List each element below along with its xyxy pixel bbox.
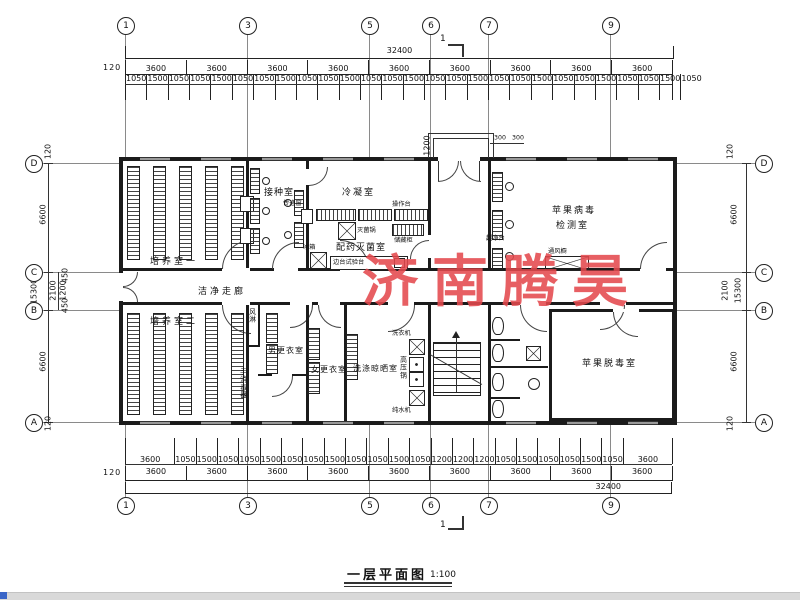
page-edge-corner [0,592,7,599]
room-label-corridor: 洁净走廊 [198,284,246,297]
wall-interior [488,305,491,421]
door-arc [272,376,293,397]
toilet-fixture [492,344,504,362]
water-purifier [409,390,425,406]
pass-window [301,209,313,224]
toilet-fixture [492,317,504,335]
section-mark [448,528,464,530]
dim-label: 1050 [409,438,430,464]
dim-label: 1050 [552,74,573,100]
dim-label: 1500 [324,438,345,464]
room-label-women-changing: 女更衣室 [311,364,347,375]
stair-up-arrow [452,331,460,338]
dim-label: 1050 [601,438,622,464]
toilet-fixture [492,373,504,391]
window [567,157,597,161]
window [628,157,658,161]
storage-cabinet [392,224,424,236]
culture-shelf [127,313,140,415]
culture-shelf [179,166,192,260]
section-mark-label: 1 [440,520,447,530]
dim-tick [742,163,751,164]
dim-label: 3600 [368,60,429,74]
clean-bench [250,228,260,254]
dim-label: 120 [44,134,53,170]
culture-shelf [231,313,244,415]
sterilizer-label: 灭菌锅 [357,226,376,235]
stool [505,220,514,229]
dim-label: 300 [512,134,524,141]
dim-label: 1050 [296,74,317,100]
dim-label: 3600 [247,466,308,480]
dim-label: 1050 [424,74,445,100]
dim-label: 1050 [232,74,253,100]
door-arc [123,272,138,287]
entrance-canopy-inner [433,138,489,158]
wall-interior [428,161,431,235]
culture-shelf [153,313,166,415]
water-purifier-label: 纯水机 [392,406,411,415]
dim-label: 1500 [595,74,616,100]
axis-line [42,422,119,423]
washer-label: 洗衣机 [392,329,411,338]
room-label-virus2: 检测室 [556,218,589,231]
dim-label: 3600 [611,466,672,480]
dim-label: 1050 [509,74,530,100]
window [567,421,597,425]
side-bench-label: 边台试验台 [333,258,364,267]
dim-label: 3600 [550,60,611,74]
grid-row-bubble: C [755,264,773,282]
door-leaf [479,161,480,181]
dim-label: 3600 [125,438,174,464]
floor-plan-sheet: 1 3 5 6 7 9 1 3 5 6 7 9 D C B A D C B A … [0,0,800,600]
dim-label: 1050 [238,438,259,464]
door-arc [309,167,328,186]
sterilizer [338,222,356,240]
wall-interior [306,185,309,268]
dim-label: 1050 [302,438,323,464]
wall-air-shower [258,305,260,347]
wall-corridor-top [666,268,677,271]
dim-label: 1050 [574,74,595,100]
dim-label: 6600 [730,197,739,233]
dim-edge-bottom: 120 [103,468,121,477]
grid-column-bubble: 1 [117,497,135,515]
dim-line [490,143,524,144]
stool [284,231,292,239]
dim-label: 1050 [360,74,381,100]
axis-line [42,163,119,164]
dim-label: 1500 [210,74,231,100]
dim-label: 1050 [559,438,580,464]
window [506,421,536,425]
wall-corridor-top [119,268,222,271]
dim-label: 3600 [611,60,672,74]
dim-label: 3600 [125,466,186,480]
worktop-bench [358,209,392,221]
sink-fixture [526,346,541,361]
dim-label: 1050 [253,74,274,100]
dim-label: 1500 [516,438,537,464]
dim-label: 1200 [473,438,494,464]
dim-label: 3600 [490,466,551,480]
dim-label: 3600 [247,60,308,74]
floor-drain [528,378,540,390]
wall-corridor-top [250,268,274,271]
grid-column-bubble: 3 [239,17,257,35]
wall-corridor-bottom [250,302,290,305]
locker [308,328,320,360]
door-arc [290,305,313,328]
dim-chain-right [746,163,747,422]
window [140,421,170,425]
window [140,157,170,161]
dim-overall-bottom: 32400 [125,482,672,494]
locker [266,313,278,343]
window [506,157,536,161]
dim-label: 1050 [345,438,366,464]
grid-column-bubble: 5 [361,497,379,515]
window [323,421,353,425]
dim-label: 1500 [339,74,360,100]
dim-label: 1050 [174,438,195,464]
dim-label: 3600 [307,466,368,480]
dim-label: 1500 [260,438,281,464]
wall-toilet [490,366,548,368]
grid-column-bubble: 9 [602,17,620,35]
door-arc [318,305,341,328]
grid-column-bubble: 1 [117,17,135,35]
window [201,421,231,425]
dim-label: 3600 [186,466,247,480]
dim-label: 15300 [734,273,743,309]
dim-label: 1050 [488,74,509,100]
wall-interior [258,374,272,376]
grid-row-bubble: C [25,264,43,282]
dim-tick [44,310,53,311]
dim-label: 3600 [368,466,429,480]
wall-air-shower [246,345,260,347]
culture-shelf [205,313,218,415]
wall-toilet-stall [490,397,520,399]
dim-label: 6600 [39,197,48,233]
air-shower-label: 风淋 [248,308,257,323]
stool [262,177,270,185]
dim-label: 1050 [189,74,210,100]
dim-bays-bottom: 360036003600360036003600360036003600 [125,466,673,481]
clean-bench-label: 超净台 [486,234,505,243]
dim-label: 1050 [125,74,146,100]
grid-column-bubble: 6 [422,497,440,515]
dim-tick [742,272,751,273]
window [262,157,292,161]
door-arc [123,287,138,302]
grid-row-bubble: D [25,155,43,173]
dim-tick [742,422,751,423]
autoclave [409,372,424,387]
window [384,157,414,161]
stool [262,207,270,215]
room-label-culture1: 培养室一 [150,254,198,267]
wall-corridor-bottom [119,302,222,305]
dim-label: 1050 [537,438,558,464]
grid-row-bubble: D [755,155,773,173]
grid-column-bubble: 6 [422,17,440,35]
dim-label: 1050 [445,74,466,100]
worktop-bench [316,209,356,221]
dim-label: 1500 [531,74,552,100]
dim-detail-top: 1050150010501050150010501050150010501050… [125,74,673,100]
grid-column-bubble: 5 [361,17,379,35]
dim-label: 1200 [431,438,452,464]
dim-label: 1500 [403,74,424,100]
title-underline-thin [344,586,452,587]
stool [262,237,270,245]
dim-label: 1050 [217,438,238,464]
dim-label: 120 [726,406,735,442]
worktop-label: 操作台 [392,200,411,209]
stool [505,182,514,191]
wall-interior [428,305,431,421]
dim-label: 1050 [366,438,387,464]
grid-column-bubble: 3 [239,497,257,515]
dim-label: 1050 [168,74,189,100]
dim-label: 3600 [429,60,490,74]
dim-label: 1500 [659,74,680,100]
dim-label: 1050 [680,74,701,100]
dim-label: 1500 [196,438,217,464]
grid-row-bubble: B [25,302,43,320]
culture-shelf [231,166,244,260]
dim-label: 1050 [495,438,516,464]
window [201,157,231,161]
room-label-culture2: 培养室二 [150,314,198,327]
culture-shelf [179,313,192,415]
grid-row-bubble: B [755,302,773,320]
culture-shelf [153,166,166,260]
room-label-inoculation: 接种室 [264,185,294,198]
clean-bench [250,168,260,194]
section-mark-label: 1 [440,34,447,44]
dim-label: 3600 [125,60,186,74]
fridge-label: 冰箱 [303,243,315,252]
room-label-washing: 洗涤晾晒室 [353,363,398,374]
room-label-detox: 苹果脱毒室 [582,356,637,369]
clean-bench [250,198,260,224]
dim-tick [742,310,751,311]
entrance-door-arc [460,161,481,182]
dim-label: 1500 [275,74,296,100]
grid-row-bubble: A [25,414,43,432]
dim-label: 120 [44,406,53,442]
window [262,421,292,425]
dim-label: 6600 [730,344,739,380]
pass-window-label: 传递窗 [283,199,302,208]
toilet-fixture [492,400,504,418]
dim-label: 300 [494,134,506,141]
title-underline-thick [344,582,452,584]
washer [409,339,425,355]
room-label-men-changing: 男更衣室 [268,345,304,356]
culture-shelf [127,166,140,260]
dim-label: 1500 [580,438,601,464]
entrance-door-arc [438,161,459,182]
dim-label: 6600 [39,344,48,380]
dim-label: 3600 [490,60,551,74]
dim-label: 3600 [623,438,672,464]
grid-row-bubble: A [755,414,773,432]
drawing-title: 一层平面图 [347,564,427,583]
window [323,157,353,161]
grid-column-bubble: 7 [480,497,498,515]
dim-label: 120 [726,134,735,170]
watermark-text: 济南腾昊 [362,252,642,314]
wall-toilet-stall [490,339,520,341]
dim-label: 2100 [49,273,58,309]
dim-label: 1050 [616,74,637,100]
dim-edge-top: 120 [103,63,121,72]
grid-column-bubble: 7 [480,17,498,35]
dim-label: 1050 [317,74,338,100]
culture-shelf [205,166,218,260]
window [384,421,414,425]
dim-label: 1500 [146,74,167,100]
door-leaf [438,161,439,181]
fridge [310,252,327,269]
dim-bays-top: 360036003600360036003600360036003600 [125,60,673,75]
dim-label: 1500 [388,438,409,464]
wall-interior [292,374,308,376]
dim-label: 1050 [381,74,402,100]
dim-label: 32400 [387,46,412,58]
stair-arrow-stem [456,336,457,392]
autoclave [409,357,424,372]
room-label-condensation: 冷凝室 [342,185,375,198]
dim-label: 1050 [281,438,302,464]
dim-label: 1500 [467,74,488,100]
room-label-virus1: 苹果病毒 [552,203,596,216]
dim-label: 1200 [452,438,473,464]
dim-label: 3600 [186,60,247,74]
dim-label: 1200 [423,128,432,164]
dim-label: 3600 [307,60,368,74]
section-mark [462,44,464,57]
clean-bench [492,172,503,202]
dim-line [125,84,672,85]
hand-sanitizer-label: 手消毒器 [239,368,248,399]
dim-line [125,464,672,465]
page-edge-strip [0,592,800,600]
dim-label: 3600 [550,466,611,480]
dim-label: 1050 [638,74,659,100]
dim-label: 450 [61,288,70,324]
worktop-bench [394,209,428,221]
grid-column-bubble: 9 [602,497,620,515]
cabinet-label: 储藏柜 [394,236,413,245]
dim-overall-top: 32400 [125,46,674,59]
dim-detail-bottom: 3600105015001050105015001050105015001050… [125,438,673,464]
autoclave-label: 高压锅 [399,356,408,379]
dim-label: 3600 [429,466,490,480]
door-arc [640,242,667,269]
dim-label: 32400 [596,482,621,493]
drawing-scale: 1:100 [430,570,456,580]
window [628,421,658,425]
dim-label: 2100 [721,273,730,309]
axis-line [42,310,119,311]
